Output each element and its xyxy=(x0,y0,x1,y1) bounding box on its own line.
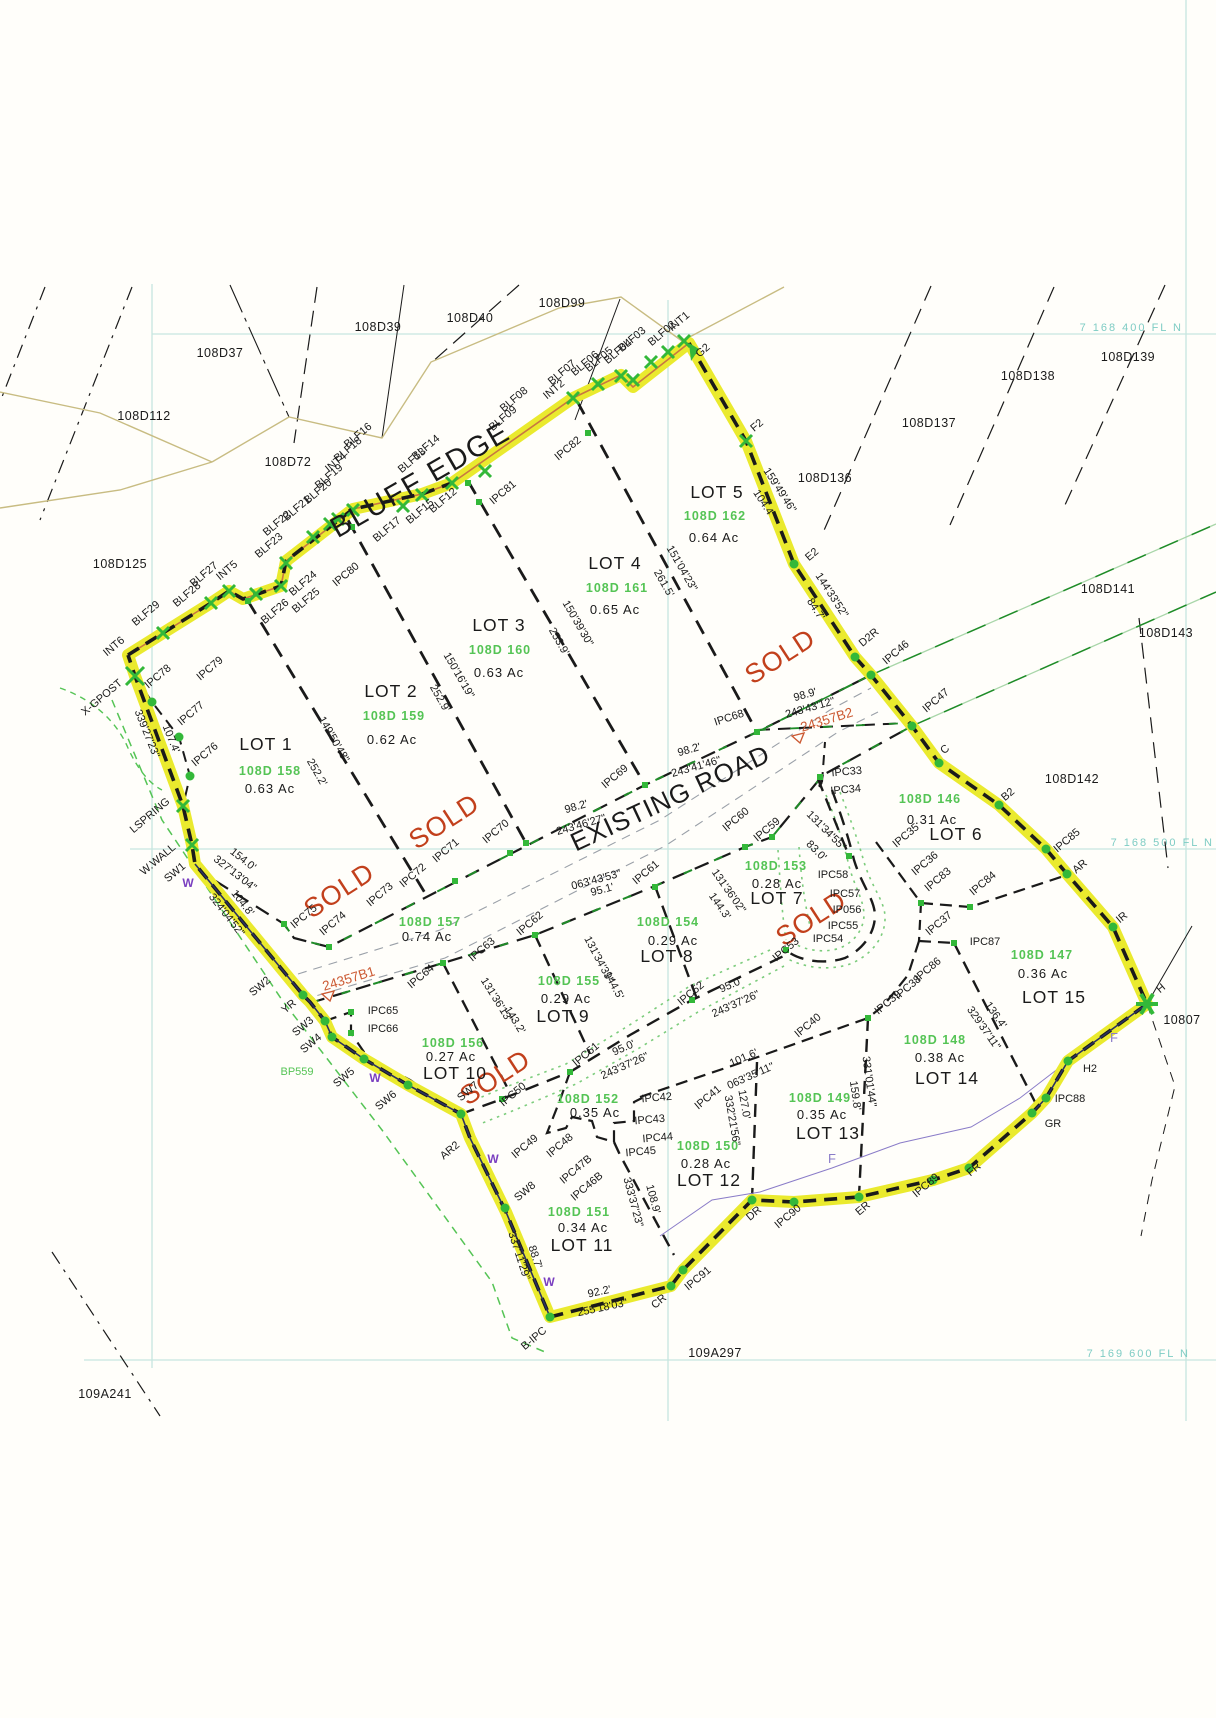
svg-text:LOT 14: LOT 14 xyxy=(915,1068,979,1088)
svg-text:IPC87: IPC87 xyxy=(970,936,1001,948)
svg-text:0.29 Ac: 0.29 Ac xyxy=(541,991,591,1006)
svg-text:LOT 4: LOT 4 xyxy=(588,553,641,573)
svg-text:109A241: 109A241 xyxy=(78,1387,132,1401)
svg-text:7 168 400 FL N: 7 168 400 FL N xyxy=(1080,322,1183,334)
svg-text:7 168 500 FL N: 7 168 500 FL N xyxy=(1111,837,1214,849)
svg-text:0.27 Ac: 0.27 Ac xyxy=(426,1049,476,1064)
svg-text:108D138: 108D138 xyxy=(1001,369,1055,383)
svg-text:IPC58: IPC58 xyxy=(818,869,849,881)
svg-text:109A297: 109A297 xyxy=(688,1346,742,1360)
svg-text:0.29 Ac: 0.29 Ac xyxy=(648,933,698,948)
svg-text:LOT 8: LOT 8 xyxy=(640,946,693,966)
svg-text:108D112: 108D112 xyxy=(117,409,170,423)
svg-text:108D 148: 108D 148 xyxy=(904,1033,966,1047)
svg-text:108D39: 108D39 xyxy=(355,320,402,334)
svg-text:LOT 9: LOT 9 xyxy=(536,1006,589,1026)
svg-text:H2: H2 xyxy=(1083,1063,1097,1075)
svg-text:0.64 Ac: 0.64 Ac xyxy=(689,530,739,545)
svg-text:0.63 Ac: 0.63 Ac xyxy=(474,665,524,680)
svg-text:108D 155: 108D 155 xyxy=(538,974,600,988)
svg-text:108D 156: 108D 156 xyxy=(422,1036,484,1050)
svg-text:IPC54: IPC54 xyxy=(813,933,844,945)
svg-text:108D139: 108D139 xyxy=(1101,350,1155,364)
svg-text:108D 151: 108D 151 xyxy=(548,1205,610,1219)
svg-text:108D136: 108D136 xyxy=(798,471,852,485)
svg-text:0.28 Ac: 0.28 Ac xyxy=(681,1156,731,1171)
svg-text:LOT 12: LOT 12 xyxy=(677,1170,741,1190)
svg-text:GR: GR xyxy=(1045,1118,1062,1130)
svg-text:0.38 Ac: 0.38 Ac xyxy=(915,1050,965,1065)
svg-text:108D 159: 108D 159 xyxy=(363,709,425,723)
svg-text:0.65 Ac: 0.65 Ac xyxy=(590,602,640,617)
svg-text:LOT 2: LOT 2 xyxy=(364,681,417,701)
svg-text:LOT 10: LOT 10 xyxy=(423,1063,487,1083)
svg-text:W: W xyxy=(487,1152,499,1166)
svg-text:F: F xyxy=(828,1151,836,1166)
svg-text:F: F xyxy=(1110,1030,1118,1045)
svg-text:IPC66: IPC66 xyxy=(368,1023,399,1035)
svg-text:W: W xyxy=(182,876,194,890)
svg-text:LOT 5: LOT 5 xyxy=(690,482,743,502)
svg-text:LOT 6: LOT 6 xyxy=(929,824,982,844)
svg-text:108D 160: 108D 160 xyxy=(469,643,531,657)
svg-text:W: W xyxy=(369,1071,381,1085)
svg-text:0.74 Ac: 0.74 Ac xyxy=(402,929,452,944)
svg-text:W: W xyxy=(543,1275,555,1289)
svg-text:0.36 Ac: 0.36 Ac xyxy=(1018,966,1068,981)
svg-text:108D37: 108D37 xyxy=(197,346,244,360)
svg-text:108D142: 108D142 xyxy=(1045,772,1099,786)
svg-text:108D 153: 108D 153 xyxy=(745,859,807,873)
svg-text:IPC88: IPC88 xyxy=(1055,1093,1086,1105)
svg-text:IPC65: IPC65 xyxy=(368,1005,399,1017)
svg-text:BP559: BP559 xyxy=(280,1066,313,1078)
svg-text:LOT 13: LOT 13 xyxy=(796,1123,860,1143)
svg-text:0.35 Ac: 0.35 Ac xyxy=(797,1107,847,1122)
svg-text:108D 147: 108D 147 xyxy=(1011,948,1073,962)
svg-text:108D 157: 108D 157 xyxy=(399,915,461,929)
svg-text:108D99: 108D99 xyxy=(539,296,586,310)
svg-text:108D 158: 108D 158 xyxy=(239,764,301,778)
svg-text:108D40: 108D40 xyxy=(447,311,494,325)
svg-text:IPC57: IPC57 xyxy=(830,888,861,900)
svg-text:0.28 Ac: 0.28 Ac xyxy=(752,876,802,891)
svg-text:108D141: 108D141 xyxy=(1081,582,1135,596)
svg-text:108D143: 108D143 xyxy=(1139,626,1193,640)
svg-text:LOT 1: LOT 1 xyxy=(239,734,292,754)
svg-text:108D137: 108D137 xyxy=(902,416,956,430)
svg-text:7 169 600 FL N: 7 169 600 FL N xyxy=(1087,1348,1190,1360)
svg-text:LOT 3: LOT 3 xyxy=(472,615,525,635)
svg-text:IP056: IP056 xyxy=(833,904,862,916)
svg-text:108D 162: 108D 162 xyxy=(684,509,746,523)
svg-text:0.62 Ac: 0.62 Ac xyxy=(367,732,417,747)
svg-text:0.34 Ac: 0.34 Ac xyxy=(558,1220,608,1235)
svg-text:108D125: 108D125 xyxy=(93,557,147,571)
svg-text:IPC55: IPC55 xyxy=(828,920,859,932)
svg-text:108D 154: 108D 154 xyxy=(637,915,699,929)
svg-text:LOT 7: LOT 7 xyxy=(750,888,803,908)
svg-text:108D 161: 108D 161 xyxy=(586,581,648,595)
svg-text:10807: 10807 xyxy=(1163,1013,1200,1027)
svg-text:108D 146: 108D 146 xyxy=(899,792,961,806)
svg-text:0.63 Ac: 0.63 Ac xyxy=(245,781,295,796)
svg-text:0.35 Ac: 0.35 Ac xyxy=(570,1105,620,1120)
svg-text:LOT 15: LOT 15 xyxy=(1022,987,1086,1007)
svg-text:108D72: 108D72 xyxy=(265,455,312,469)
svg-text:108D 152: 108D 152 xyxy=(557,1092,619,1106)
svg-text:108D 149: 108D 149 xyxy=(789,1091,851,1105)
svg-text:LOT 11: LOT 11 xyxy=(551,1235,614,1255)
